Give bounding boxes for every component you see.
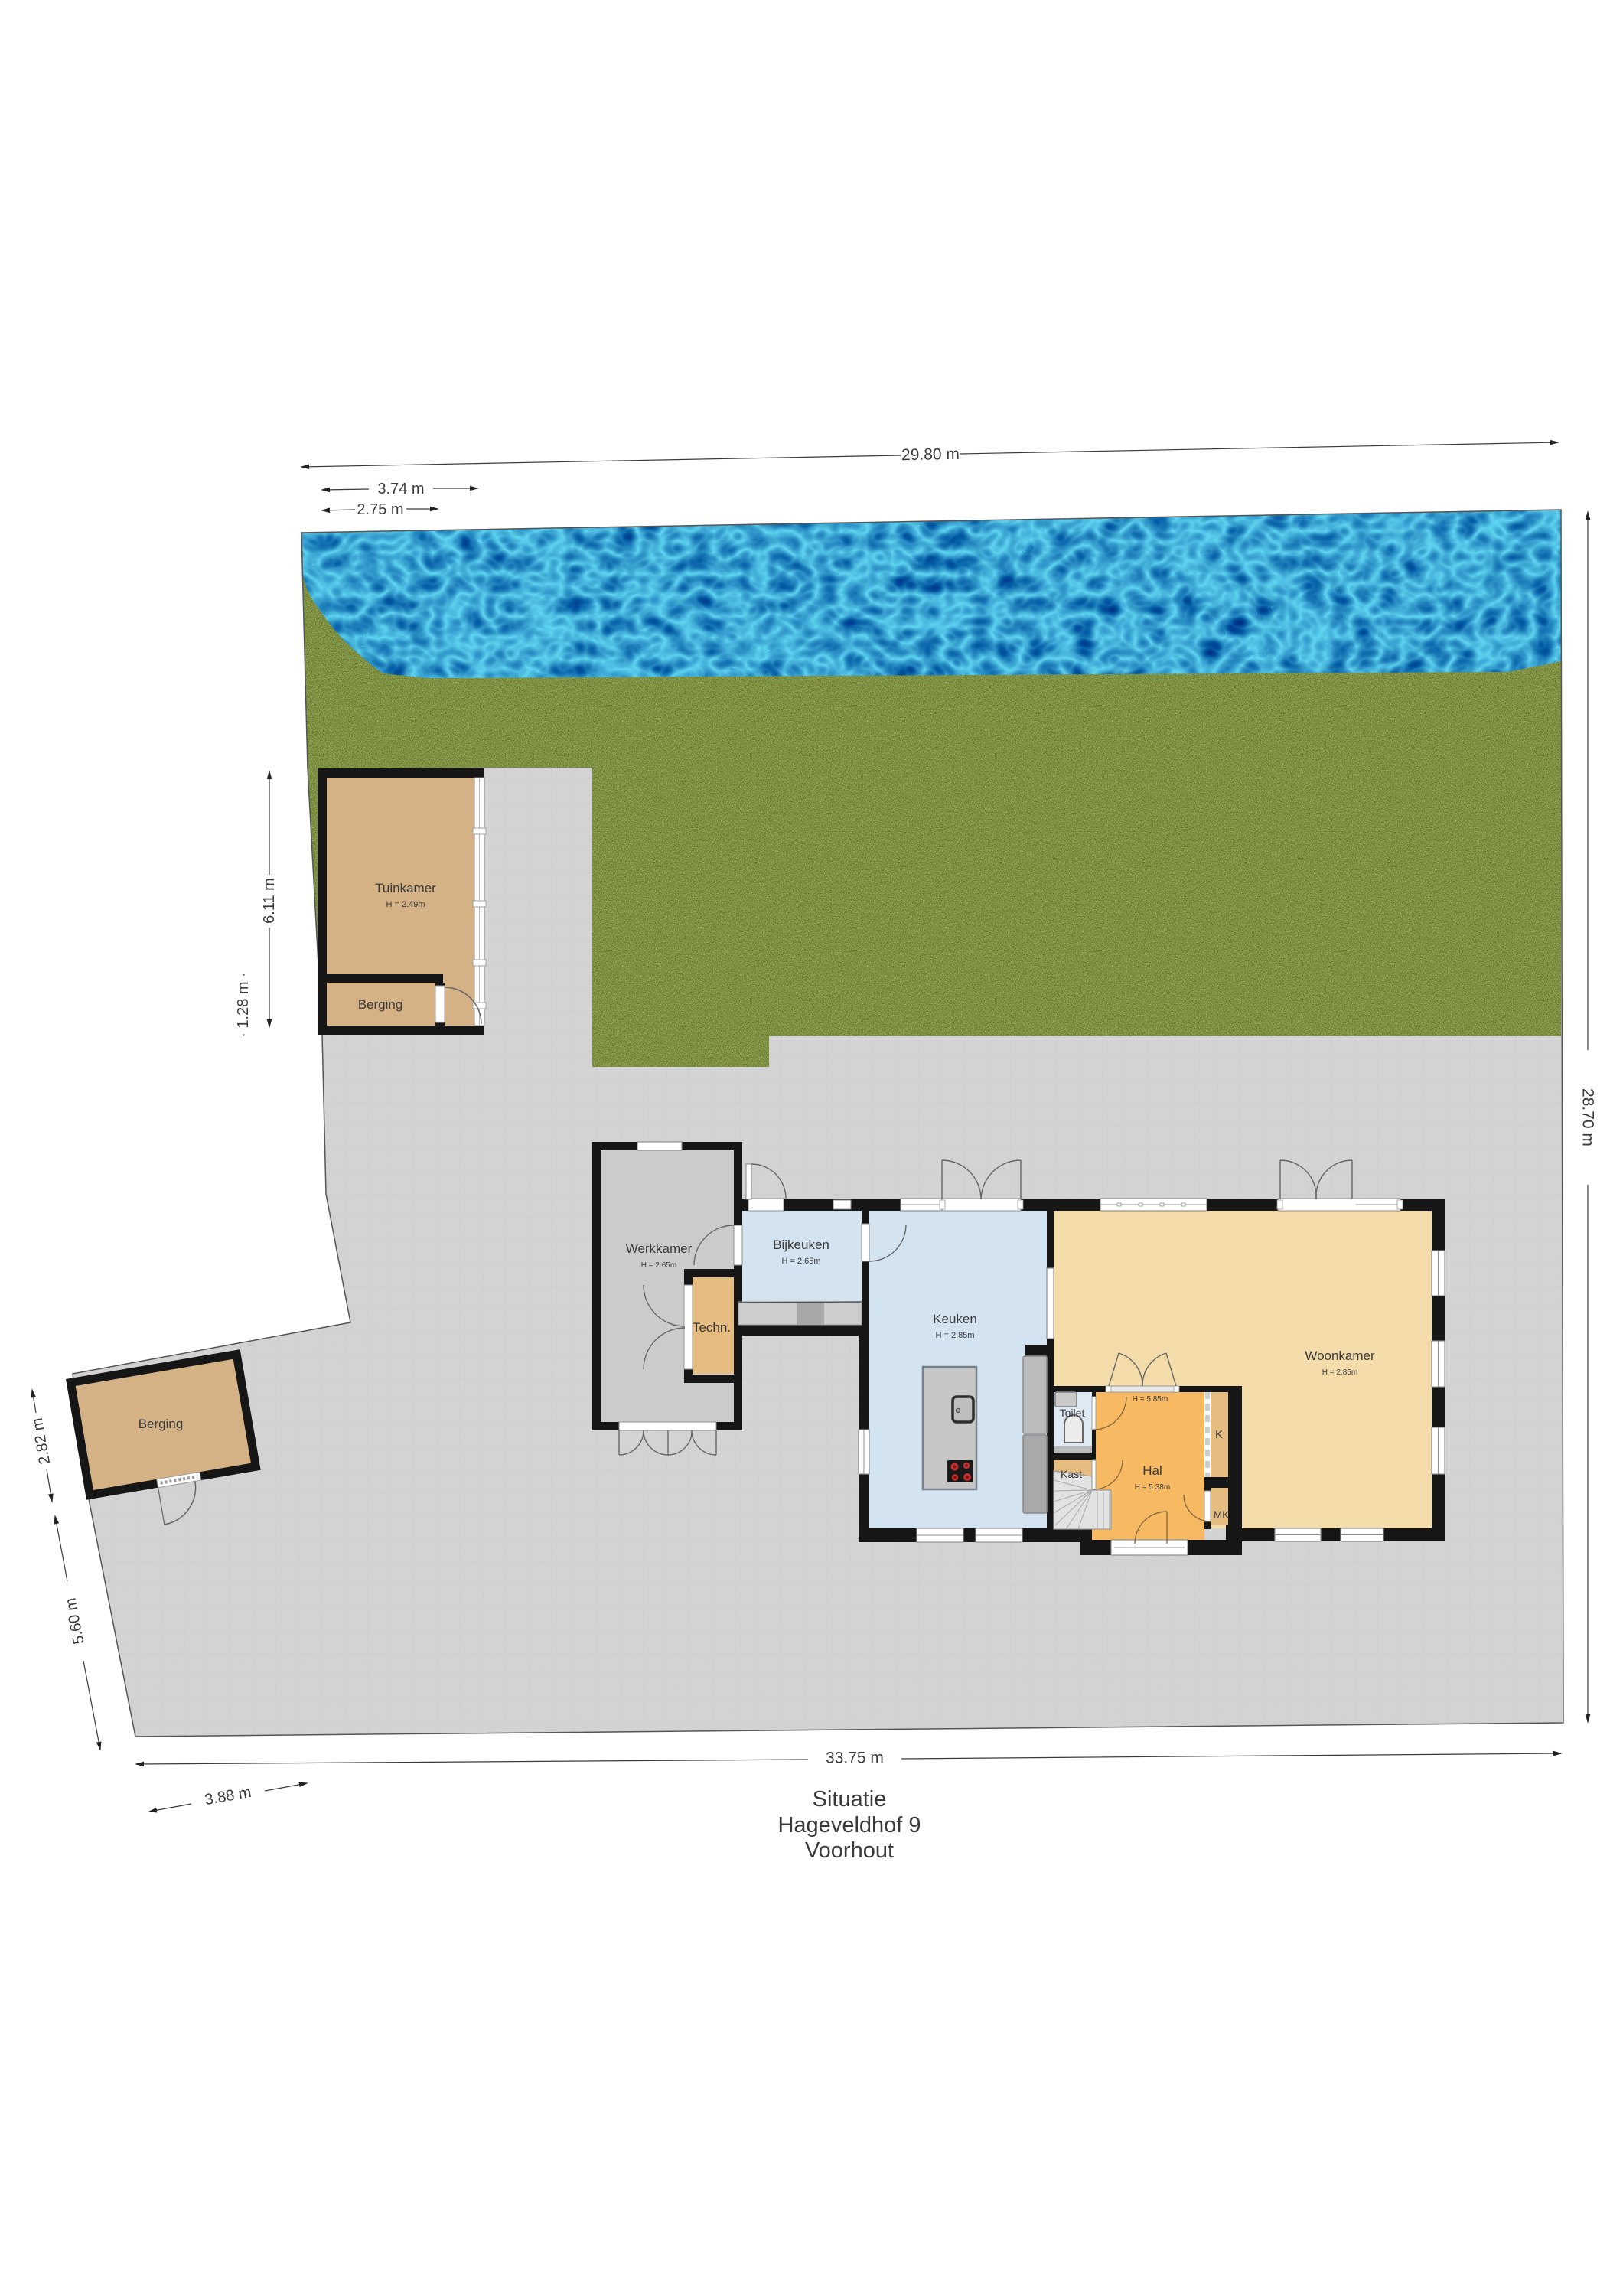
svg-text:· 1.28 m ·: · 1.28 m · bbox=[235, 972, 252, 1038]
svg-text:Keuken: Keuken bbox=[933, 1312, 977, 1326]
svg-text:29.80 m: 29.80 m bbox=[901, 445, 960, 464]
svg-text:H = 2.85m: H = 2.85m bbox=[1322, 1368, 1357, 1377]
svg-text:28.70 m: 28.70 m bbox=[1579, 1088, 1597, 1146]
svg-text:K: K bbox=[1215, 1428, 1223, 1441]
svg-text:33.75 m: 33.75 m bbox=[826, 1750, 884, 1767]
svg-text:H = 5.85m: H = 5.85m bbox=[1133, 1395, 1168, 1404]
svg-text:6.11 m: 6.11 m bbox=[261, 878, 278, 924]
svg-text:Bijkeuken: Bijkeuken bbox=[773, 1238, 829, 1252]
svg-text:Woonkamer: Woonkamer bbox=[1305, 1349, 1375, 1363]
svg-text:Voorhout: Voorhout bbox=[805, 1838, 894, 1863]
svg-text:H = 2.85m: H = 2.85m bbox=[935, 1331, 974, 1340]
svg-text:Situatie: Situatie bbox=[813, 1787, 887, 1812]
svg-text:3.74 m: 3.74 m bbox=[377, 481, 424, 497]
svg-text:Hageveldhof 9: Hageveldhof 9 bbox=[777, 1813, 921, 1838]
svg-text:H = 2.65m: H = 2.65m bbox=[641, 1261, 676, 1270]
svg-text:Tuinkamer: Tuinkamer bbox=[375, 881, 436, 895]
svg-text:Werkkamer: Werkkamer bbox=[626, 1241, 693, 1256]
svg-text:Hal: Hal bbox=[1142, 1463, 1162, 1478]
svg-text:2.75 m: 2.75 m bbox=[357, 501, 403, 518]
svg-text:Kast: Kast bbox=[1061, 1468, 1082, 1480]
svg-text:H = 2.65m: H = 2.65m bbox=[781, 1257, 820, 1266]
svg-text:H = 2.49m: H = 2.49m bbox=[386, 900, 425, 909]
svg-text:Berging: Berging bbox=[358, 997, 403, 1012]
svg-text:Techn.: Techn. bbox=[693, 1320, 731, 1335]
svg-text:Toilet: Toilet bbox=[1060, 1407, 1085, 1419]
svg-text:Berging: Berging bbox=[139, 1417, 184, 1431]
svg-text:MK: MK bbox=[1214, 1508, 1230, 1521]
svg-text:H = 5.38m: H = 5.38m bbox=[1135, 1483, 1170, 1492]
